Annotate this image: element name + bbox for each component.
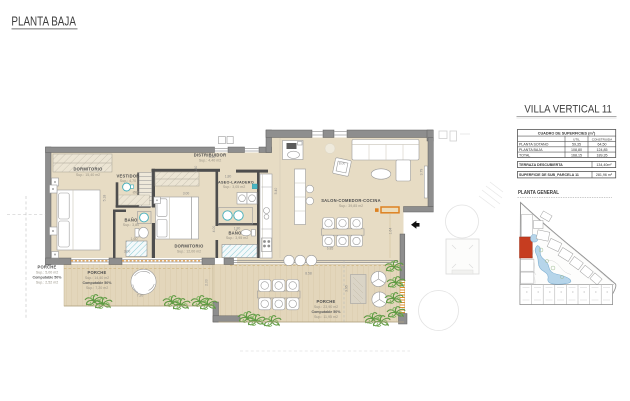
svg-text:1.80: 1.80	[194, 166, 198, 173]
svg-text:1.64: 1.64	[389, 228, 393, 235]
svg-text:5.40: 5.40	[274, 188, 278, 195]
svg-text:1,60: 1,60	[131, 237, 138, 241]
svg-text:VESTIDOR: VESTIDOR	[117, 174, 140, 179]
svg-text:ASEO-LAVADERO: ASEO-LAVADERO	[218, 181, 254, 185]
svg-text:Sup.: 3,05 m2: Sup.: 3,05 m2	[223, 185, 245, 189]
svg-text:PLANTA BAJA: PLANTA BAJA	[11, 13, 76, 28]
svg-text:PORCHE: PORCHE	[87, 270, 106, 275]
svg-text:1,80: 1,80	[225, 175, 232, 179]
svg-text:Sup.: 15,40 m2: Sup.: 15,40 m2	[76, 173, 100, 177]
svg-text:UTIL: UTIL	[573, 137, 580, 141]
svg-text:BAÑO: BAÑO	[228, 231, 242, 236]
svg-text:SUPERFICIE DE SUB_PARCELA 11: SUPERFICIE DE SUB_PARCELA 11	[519, 173, 579, 177]
svg-text:1,80: 1,80	[234, 227, 241, 231]
svg-text:4.00: 4.00	[212, 226, 216, 233]
svg-text:TERRAZA DESCUBIERTA: TERRAZA DESCUBIERTA	[519, 163, 563, 167]
svg-text:Sup.: 4,70: Sup.: 4,70	[120, 179, 136, 183]
svg-text:3.00: 3.00	[183, 192, 190, 196]
svg-text:Computable 50%: Computable 50%	[33, 276, 63, 280]
svg-text:Computable 50%: Computable 50%	[312, 310, 342, 314]
svg-text:PORCHE: PORCHE	[316, 299, 335, 304]
svg-text:Sup.: 11,95 m2: Sup.: 11,95 m2	[314, 315, 338, 319]
svg-text:Sup.: 3,95 m2: Sup.: 3,95 m2	[226, 236, 248, 240]
svg-text:168,15: 168,15	[571, 153, 582, 157]
svg-text:BAÑO: BAÑO	[124, 218, 138, 223]
svg-text:VILLA VERTICAL 11: VILLA VERTICAL 11	[524, 103, 612, 115]
svg-text:134,40m²: 134,40m²	[596, 163, 612, 167]
svg-text:Sup.: 14,40 m2: Sup.: 14,40 m2	[85, 276, 109, 280]
svg-text:4.40: 4.40	[209, 155, 216, 159]
svg-text:Sup.: 2,52 m2: Sup.: 2,52 m2	[36, 281, 58, 285]
svg-text:3.00: 3.00	[124, 250, 131, 254]
svg-text:Ø80: Ø80	[133, 191, 140, 195]
svg-text:Computable 50%: Computable 50%	[83, 281, 113, 285]
svg-text:5.18: 5.18	[103, 195, 107, 202]
svg-text:SALON-COMEDOR-COCINA: SALON-COMEDOR-COCINA	[321, 198, 381, 203]
svg-text:Sup.: 23,90 m2: Sup.: 23,90 m2	[314, 305, 338, 309]
svg-text:3.79: 3.79	[420, 169, 424, 176]
svg-text:CONSTRUIDA: CONSTRUIDA	[592, 137, 613, 141]
svg-text:281,96 m²: 281,96 m²	[596, 173, 613, 177]
svg-text:189,35: 189,35	[597, 153, 608, 157]
svg-text:PLANTA GENERAL: PLANTA GENERAL	[518, 190, 560, 196]
svg-text:3.95: 3.95	[345, 285, 349, 292]
svg-text:PORCHE: PORCHE	[37, 265, 56, 270]
svg-text:TOTAL: TOTAL	[519, 153, 530, 157]
svg-text:8.00: 8.00	[339, 162, 346, 166]
svg-text:Sup.: 39,85 m2: Sup.: 39,85 m2	[339, 204, 363, 208]
svg-text:64,50: 64,50	[598, 143, 607, 147]
svg-text:Sup.: 12,00 m2: Sup.: 12,00 m2	[177, 250, 201, 254]
svg-text:Sup.: 4,40 m2: Sup.: 4,40 m2	[199, 159, 221, 163]
svg-text:7.20: 7.20	[137, 294, 144, 298]
svg-text:CUADRO DE SUPERFICIES (m²): CUADRO DE SUPERFICIES (m²)	[538, 132, 596, 136]
svg-text:Sup.: 7,20 m2: Sup.: 7,20 m2	[86, 286, 108, 290]
svg-text:6.85: 6.85	[327, 247, 334, 251]
svg-text:8.58: 8.58	[305, 272, 312, 276]
svg-text:DORMITORIO: DORMITORIO	[174, 244, 204, 249]
svg-text:Sup.: 3,80: Sup.: 3,80	[123, 223, 139, 227]
svg-text:PLANTA SOTANO: PLANTA SOTANO	[519, 143, 549, 147]
svg-text:108,80: 108,80	[571, 148, 582, 152]
svg-text:PLANTA BAJA: PLANTA BAJA	[519, 148, 543, 152]
svg-text:2.00: 2.00	[205, 279, 209, 286]
svg-text:124,85: 124,85	[597, 148, 608, 152]
svg-text:Sup.: 5,00 m2: Sup.: 5,00 m2	[36, 271, 58, 275]
svg-text:59,35: 59,35	[572, 143, 581, 147]
svg-text:DORMITORIO: DORMITORIO	[73, 167, 103, 172]
